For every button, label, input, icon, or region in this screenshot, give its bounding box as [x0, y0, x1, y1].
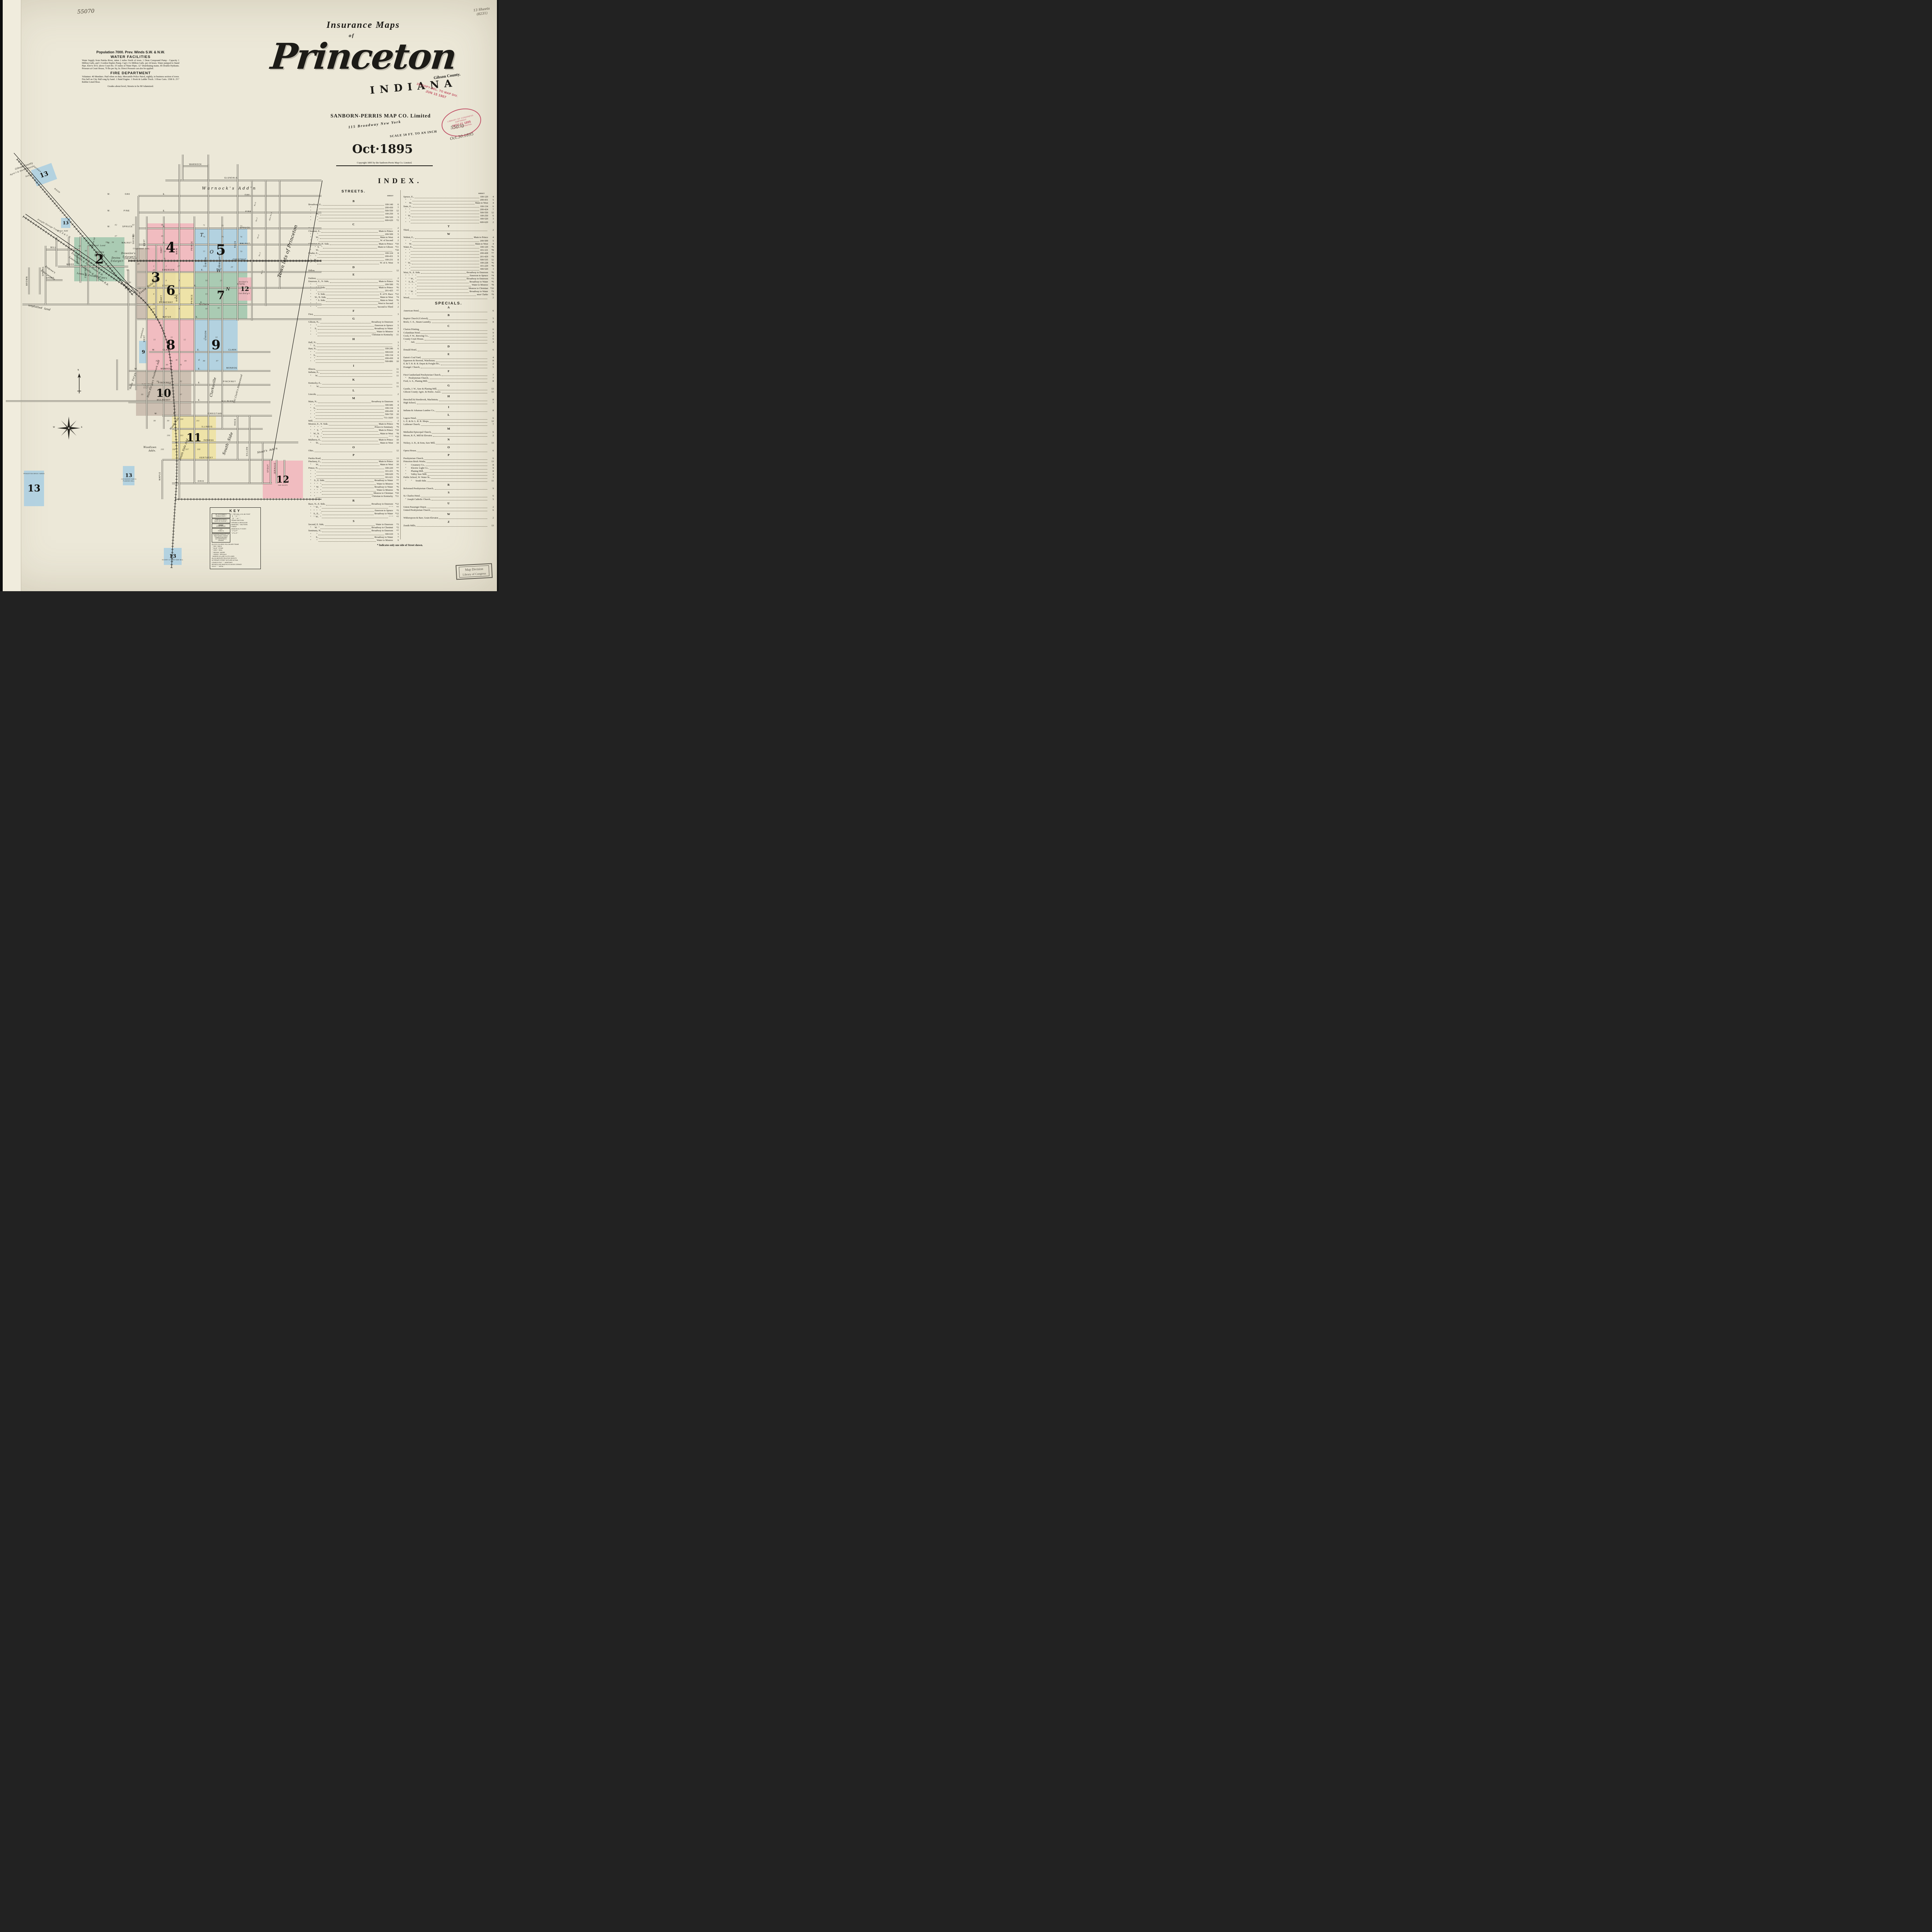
lot-number: 99 — [167, 420, 169, 422]
street-label: E. — [198, 399, 201, 401]
lot-number: 62 — [115, 224, 117, 226]
street-label: MULBERRY — [157, 399, 171, 401]
lot-number: 87 — [216, 361, 218, 362]
lot-number: 92 — [180, 381, 182, 383]
lot-number: 12 — [184, 339, 186, 341]
street-label: E. — [197, 349, 200, 351]
key-symbol-cell: COUNTING FROM LEFT TO RIGHT WHILE LOOKIN… — [212, 533, 230, 543]
addition-label: Enl'gm't — [94, 254, 105, 257]
sanborn-map-sheet: 55070 13 Sheets (8231) Population 7000. … — [0, 0, 498, 591]
lot-number: 102 — [196, 435, 200, 437]
street-label: E. — [163, 193, 166, 196]
lot-number: 24 — [220, 280, 222, 282]
compass-rose-icon — [57, 417, 80, 440]
street-label: WEST — [143, 239, 146, 246]
lot-number: 77 — [203, 251, 205, 253]
block-number-9: 9 — [211, 338, 221, 352]
addition-label: Archer's — [239, 281, 248, 283]
lot-number: 73 — [240, 226, 242, 228]
street-label: HART — [160, 246, 163, 253]
lot-number: 79 — [240, 251, 242, 253]
lot-number: 28 — [137, 264, 139, 265]
lot-number: 11 — [153, 339, 156, 341]
street-label: STATE — [162, 285, 170, 287]
lot-number: 9 — [166, 308, 167, 310]
lot-number: 78 — [219, 251, 221, 253]
key-symbols-column: NO. OF STORIES 3SHINGLE ROOF ×COMPOST'N … — [212, 514, 230, 543]
addition-label: Halls Enl'gm't — [146, 379, 155, 398]
lot-number: 7 — [204, 338, 205, 340]
lot-number: 61 — [139, 288, 141, 290]
lot-number: 96 — [161, 394, 163, 396]
block-site-label: J.W.GADDIS SAW & PLANING MILL — [120, 478, 137, 482]
street-label: W. — [107, 226, 111, 228]
addition-label: W a r n o c k ' s A d d ' n — [202, 187, 256, 191]
lot-number: 95 — [141, 394, 143, 396]
addition-label: Unplotted Land — [88, 245, 105, 247]
street-label: WATER — [163, 316, 172, 318]
lot-number: 54 — [112, 242, 114, 244]
lot-number: 56 — [85, 250, 87, 252]
lot-number: 71 — [203, 225, 205, 227]
addition-label: STAT'N — [143, 387, 150, 389]
lot-number: 3 — [179, 280, 180, 282]
lot-number: 5 — [153, 280, 155, 282]
street-label: PINE — [124, 210, 130, 212]
street-label: PRINCE — [191, 294, 193, 304]
lot-number: 68 — [115, 251, 117, 253]
lot-number: 1 — [153, 266, 155, 268]
addition-label: 1st Enl'g't — [238, 293, 250, 295]
block-number-7: 7 — [217, 290, 225, 301]
addition-label: No.6 — [253, 202, 257, 206]
scan-edge-left — [0, 0, 3, 591]
street-label: WALNUT — [240, 243, 250, 245]
lot-number: 93 — [169, 383, 171, 385]
lot-number: 29 — [153, 270, 155, 272]
street-label: CLARK — [163, 349, 171, 351]
block-number-13: 13 — [169, 554, 176, 559]
street-label: W. — [107, 210, 111, 212]
street-label: W. — [152, 349, 155, 351]
lot-number: 19 — [218, 266, 220, 268]
lot-number: 64 — [161, 224, 163, 226]
lot-number: 55 — [105, 242, 108, 244]
addition-label: No.4 — [257, 234, 260, 239]
street-label: RACE — [234, 241, 236, 248]
addition-label: Town lots of Princeton — [276, 224, 299, 278]
addition-label: Enlargm't — [123, 256, 136, 259]
addition-label: Addn. — [148, 450, 156, 452]
street-label: W — [53, 426, 55, 429]
addition-label: LIGHT — [144, 385, 150, 387]
key-symbol-cell: NO. OF STORIES 3SHINGLE ROOF × — [212, 514, 230, 518]
map-key: KEY NO. OF STORIES 3SHINGLE ROOF ×COMPOS… — [210, 507, 261, 569]
key-color-legend: B'LD'GS COLORED YELLOW ARE FRAME " " RED… — [212, 544, 259, 568]
street-label: CLARK — [228, 349, 237, 351]
street-label: STOUT — [267, 464, 269, 473]
key-symbol-cell: ⚙ ⚙STABLE ⊠ — [212, 528, 230, 533]
street-label: DILLON — [246, 447, 248, 456]
key-title: KEY — [212, 509, 259, 513]
lot-number: 105 — [161, 449, 164, 451]
lot-number: 101 — [196, 420, 200, 422]
street-label: E. — [173, 413, 176, 415]
railroad-label: PATOKA — [32, 165, 42, 173]
lot-number: 106 — [172, 449, 176, 451]
addition-label: Halls Enl'g't — [129, 372, 137, 389]
street-label: W. — [107, 242, 111, 244]
block-site-label: PRINCETON BRICK YARDS — [21, 473, 47, 474]
addition-label: ELECTRIC — [142, 383, 151, 385]
addition-label: No.3 — [258, 252, 261, 257]
addition-label: Brownlee's — [121, 252, 136, 255]
lot-number: 66 — [132, 236, 134, 238]
street-label: E. — [201, 269, 204, 271]
addition-label: Archers — [199, 303, 209, 306]
street-label: E. — [198, 382, 201, 384]
addition-label: C.C.Clark's Homestead — [233, 374, 243, 403]
addition-label: No.5 — [255, 217, 258, 222]
addition-label: Southwark Add — [152, 360, 160, 379]
lot-number: 4 — [166, 280, 167, 282]
street-label: OAK — [125, 193, 130, 196]
lot-number: 100 — [180, 419, 184, 421]
street-label: CHRISTIAN — [208, 413, 222, 415]
street-label: JERAULD — [274, 463, 276, 474]
addition-label: Unplotted lots. — [133, 248, 150, 250]
railroad-label: ROAD — [54, 188, 61, 194]
street-label: S. — [176, 358, 178, 361]
lot-number: 15 — [205, 294, 207, 296]
street-label: MONROE — [226, 367, 238, 369]
addition-label: Devins — [95, 251, 104, 254]
street-label: MAPLE — [159, 472, 161, 480]
street-label: PRINCE — [191, 241, 193, 251]
addition-label: Society — [25, 173, 34, 178]
lot-number: 108 — [197, 449, 201, 451]
lot-number: 14 — [205, 280, 207, 282]
block-site-label: NICKEY & SONS SAW MILL — [161, 559, 184, 561]
block-number-13: 13 — [63, 221, 68, 225]
lot-number: 36 — [84, 266, 86, 268]
street-label: W. — [134, 368, 138, 370]
lot-number: 72 — [221, 225, 224, 227]
addition-label: Also No.5 — [269, 212, 273, 221]
lot-number: 86 — [203, 361, 205, 362]
lot-number: 91 — [180, 364, 182, 366]
lot-number: 18 — [215, 337, 218, 339]
street-label: PINE — [245, 211, 252, 213]
street-label: FIRST — [125, 281, 127, 289]
addition-label: Woods Add. — [169, 417, 180, 430]
street-label: SECOND — [133, 233, 135, 244]
lot-number: 6 — [153, 294, 155, 296]
lot-number: 103 — [180, 435, 184, 437]
street-label: RACE — [234, 418, 236, 425]
block-number-10: 10 — [156, 388, 171, 399]
lot-number: 33 — [170, 337, 173, 339]
street-label: SPRUCE — [122, 226, 133, 228]
addition-label: Court — [172, 294, 178, 296]
street-label: EMERSON — [162, 269, 175, 271]
key-symbol-cell: ▃▃▃▃▃STEAM BOILER — [212, 524, 230, 528]
addition-label: No.2 — [260, 270, 264, 274]
lot-number: 97 — [180, 394, 182, 396]
addition-label: Devins — [112, 257, 120, 260]
street-label: MILL — [50, 247, 56, 249]
street-label: KENTUCKY — [199, 457, 213, 459]
street-label: PINCKNEY — [223, 381, 236, 383]
lot-number: 70 — [163, 251, 166, 253]
lot-number: 98 — [153, 420, 156, 422]
lot-number: 20 — [231, 267, 233, 269]
street-label: W. — [107, 193, 111, 196]
block-site-label: CAR SHOPS — [260, 485, 306, 486]
street-label: E — [81, 426, 83, 429]
lot-number: 94 — [156, 381, 159, 383]
lot-number: 2 — [166, 266, 167, 268]
street-label: MAIN — [176, 248, 178, 255]
lot-number: 67 — [115, 236, 117, 238]
lot-number: 65 — [161, 236, 163, 238]
lot-number: 16 — [205, 308, 207, 310]
addition-label: Ho. — [174, 297, 178, 299]
lot-number: 63 — [132, 224, 134, 226]
street-label: E. — [163, 242, 166, 244]
lot-number: 27 — [177, 266, 180, 268]
key-color-line: SOLID " " " METAL " — [212, 566, 259, 568]
street-label: WARNOCK — [189, 163, 202, 166]
block-number-9: 9 — [142, 350, 145, 354]
street-label: E. — [164, 258, 167, 260]
lot-number: 75 — [221, 236, 224, 238]
addition-label: unplotted land — [28, 304, 51, 311]
lot-number: 50 — [78, 246, 81, 248]
addition-label: W — [216, 268, 221, 273]
street-label: ILLINOIS — [202, 426, 213, 428]
street-label: E. — [196, 316, 199, 318]
key-firewall-column: ▏ FIRE WALL 6 IN. AB. ROOF▕▏ " " 12 " " … — [231, 514, 259, 543]
street-label: HART — [160, 295, 163, 302]
street-label: GIBSON — [205, 330, 207, 340]
street-label: WEST — [143, 335, 146, 342]
addition-label: N — [226, 286, 230, 292]
block-number-4: 4 — [166, 241, 175, 255]
lot-number: 83 — [156, 361, 158, 362]
street-label: WALNUT — [122, 242, 132, 244]
street-label: INDIANA — [203, 439, 214, 442]
lot-number: 57 — [101, 257, 103, 259]
lot-number: 107 — [185, 449, 189, 451]
lot-number: 90 — [166, 364, 168, 366]
street-label: BROADWAY — [159, 301, 173, 304]
lot-number: 84 — [170, 361, 173, 362]
street-label: S. — [198, 358, 201, 361]
block-number-12: 12 — [276, 475, 289, 484]
key-symbol-cell: COMPOST'N ROOF ●SLATE OR TIN ROOF ○ — [212, 519, 230, 523]
street-label: MONROE — [161, 368, 172, 370]
block-number-13: 13 — [125, 473, 132, 478]
addition-label: Clarksville — [209, 377, 218, 398]
lot-number: 10 — [153, 308, 155, 310]
addition-label: O — [210, 249, 214, 255]
street-label: STATE — [237, 283, 245, 286]
addition-label: Stout's Add'n — [257, 447, 278, 454]
lot-number: 13 — [203, 266, 205, 268]
street-label: OHIO — [198, 480, 204, 483]
lot-number: 59 — [129, 282, 131, 284]
lot-number: 58 — [126, 270, 129, 272]
street-label: OAK — [245, 194, 250, 196]
map-label-layer: 13132345678910111212CAR SHOPS13PRINCETON… — [0, 0, 498, 591]
addition-label: Evans Enlargm't — [138, 277, 160, 295]
addition-label: South Side — [222, 432, 234, 456]
lot-number: 7 — [179, 294, 180, 296]
street-label: N — [78, 369, 80, 371]
street-label: BROWN — [26, 276, 28, 286]
lot-number: 85 — [184, 361, 187, 362]
key-line: " 2ⁿᵈ & 4ᵗʰ " — [231, 532, 259, 534]
lot-number: 76 — [203, 236, 205, 238]
scan-edge-right — [497, 0, 498, 591]
street-label: E. — [198, 368, 201, 370]
lot-number: 74 — [240, 236, 242, 238]
block-number-12: 12 — [240, 286, 249, 292]
lot-number: 25 — [220, 293, 222, 295]
lot-number: 82 — [218, 308, 220, 310]
street-label: GLENDALE — [224, 177, 238, 179]
street-label: E. — [163, 210, 166, 212]
lot-number: 104 — [167, 435, 170, 437]
lot-number: 30 — [153, 286, 155, 288]
lot-number: 31 — [153, 304, 155, 306]
block-number-13: 13 — [27, 484, 40, 493]
street-label: E. — [194, 285, 197, 287]
lot-number: 8 — [179, 308, 180, 310]
addition-label: Woodlawn — [143, 446, 156, 449]
street-label: CHESTNUT — [233, 259, 246, 261]
street-label: W. — [155, 413, 158, 415]
street-label: WOOD — [66, 264, 74, 266]
addition-label: Enlargm't — [111, 260, 124, 263]
north-arrow-icon — [76, 373, 83, 395]
